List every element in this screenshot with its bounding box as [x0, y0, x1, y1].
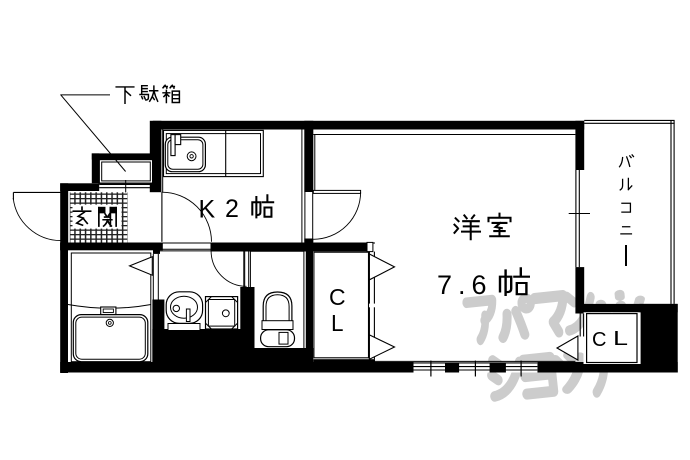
svg-text:C: C [329, 284, 346, 310]
svg-text:L: L [613, 328, 628, 350]
svg-text:L: L [331, 310, 344, 336]
svg-text:2: 2 [225, 195, 239, 223]
svg-text:7.6: 7.6 [437, 270, 493, 300]
svg-text:K: K [199, 196, 216, 224]
svg-text:C: C [592, 329, 606, 351]
